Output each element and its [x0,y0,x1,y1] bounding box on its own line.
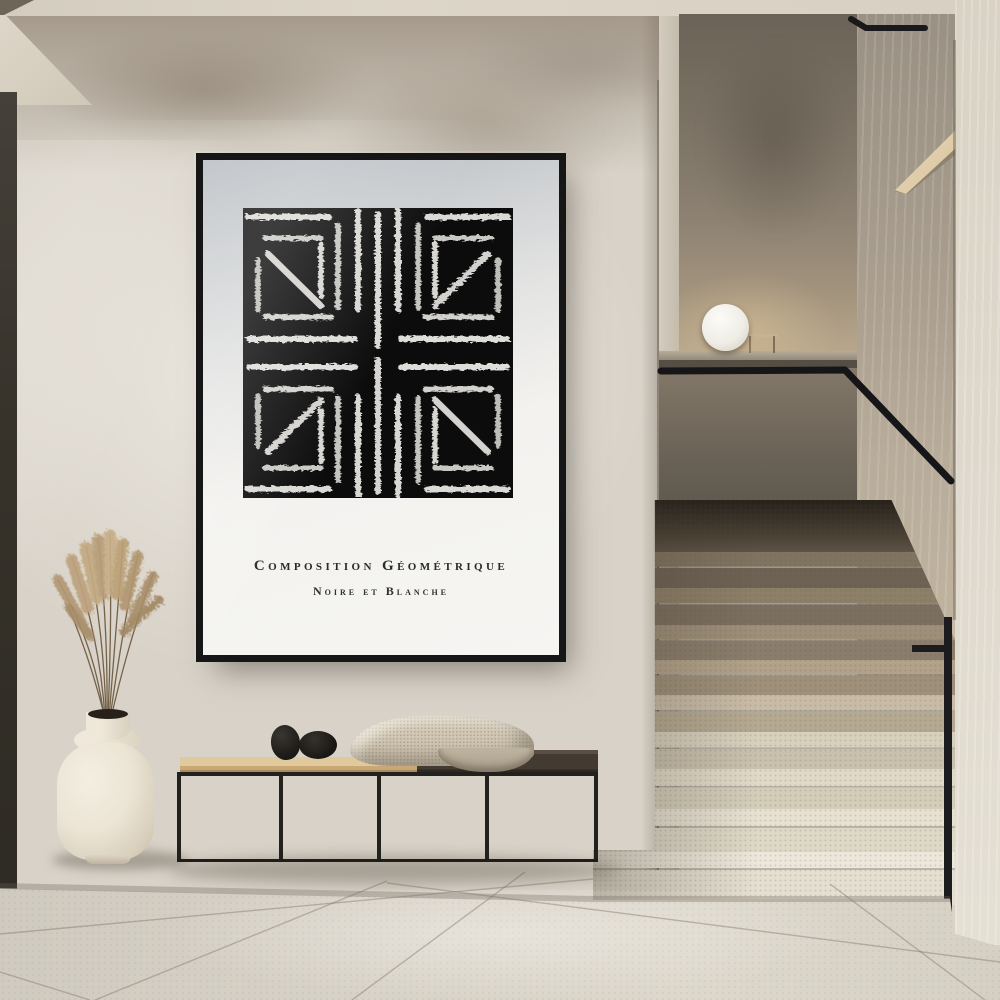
pampas-grass [20,528,190,728]
vase-mouth [88,709,128,719]
railing-bracket [912,645,948,652]
railing-post [944,617,952,933]
plumes [58,536,159,636]
interior-scene: Composition Géométrique Noire et Blanche [0,0,1000,1000]
bench-leg [279,776,283,862]
stair-parapet [659,368,857,518]
vase-foot [85,855,131,864]
framed-poster: Composition Géométrique Noire et Blanche [196,153,566,662]
small-table-leg [749,336,751,353]
small-table-leg [773,336,775,353]
bench-frame-bottom-rail [177,859,598,862]
right-wall-texture [955,0,1000,945]
decor-stone [299,731,337,759]
glass-glare [203,160,559,655]
floor-sheen [150,890,850,1000]
parapet-ledge-edge [659,360,857,368]
left-door-panel [0,92,17,904]
bench-leg [594,776,598,862]
vase [57,742,154,860]
bench-leg [377,776,381,862]
sphere-lamp [702,304,749,351]
parapet-ledge [659,351,857,360]
bench-frame-rail [177,772,598,776]
right-wall-corner-line [953,40,956,620]
poster-mat: Composition Géométrique Noire et Blanche [203,160,559,655]
stairwell-wall-texture [700,40,850,240]
bench-leg [177,776,181,862]
bench-leg [485,776,489,862]
